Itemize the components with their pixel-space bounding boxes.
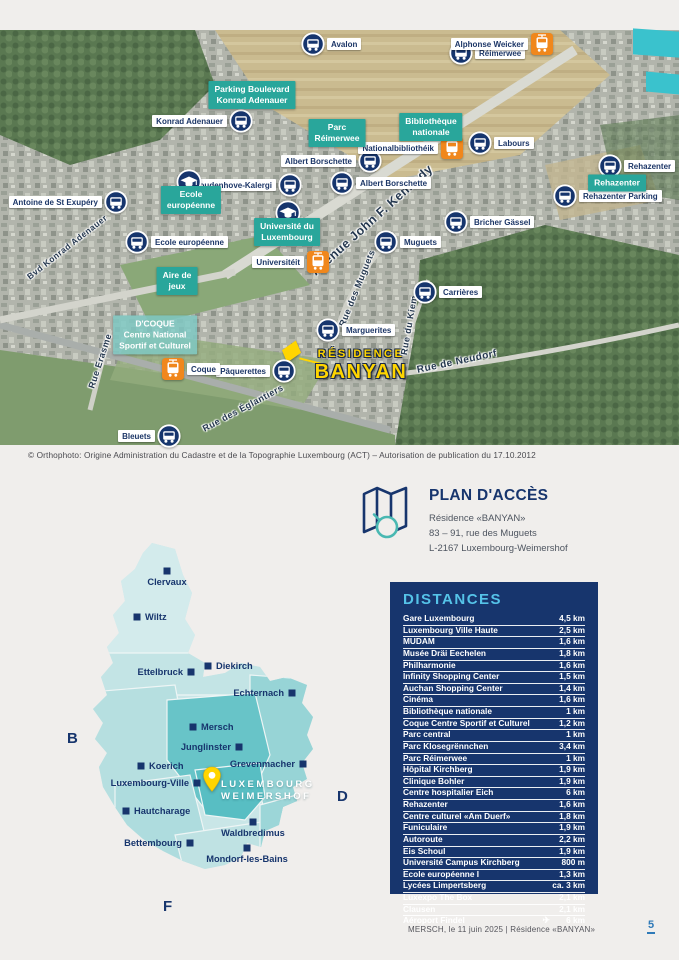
bus-stop-label: Carrières bbox=[439, 286, 482, 298]
distance-value: 800 m bbox=[561, 858, 585, 867]
address-line-2: 83 – 91, rue des Muguets bbox=[429, 526, 568, 541]
poi-box-line: Konrad Adenauer bbox=[214, 95, 289, 106]
poi-box-line: Rehazenter bbox=[594, 177, 640, 188]
distance-value-group: 1,9 km bbox=[559, 847, 585, 856]
distance-place: Parc Réimerwee bbox=[403, 754, 467, 763]
city-label: Hautcharage bbox=[134, 806, 190, 816]
distance-place: Clausen bbox=[403, 905, 435, 914]
distance-place: Philharmonie bbox=[403, 661, 456, 670]
distance-value: 1,2 km bbox=[559, 719, 585, 728]
bus-stop-icon bbox=[278, 173, 302, 197]
distance-value: 1,3 km bbox=[559, 870, 585, 879]
tram-stop-label: Coque bbox=[187, 363, 220, 375]
distances-panel: DISTANCES Gare Luxembourg4,5 kmLuxembour… bbox=[390, 582, 598, 894]
street-label: Rue de Neudorf bbox=[416, 348, 498, 376]
city-label: Luxembourg-Ville bbox=[111, 778, 189, 788]
bus-stop-label: Avalon bbox=[327, 38, 361, 50]
table-row: Gare Luxembourg4,5 km bbox=[403, 614, 585, 626]
city-marker bbox=[289, 690, 296, 697]
distance-value-group: 1,8 km bbox=[559, 812, 585, 821]
distance-value: 1 km bbox=[566, 754, 585, 763]
distance-value: 1,9 km bbox=[559, 777, 585, 786]
distance-value-group: 1 km bbox=[566, 707, 585, 716]
bus-stop-label: Labours bbox=[494, 137, 534, 149]
distance-place: Rehazenter bbox=[403, 800, 448, 809]
distance-value: 1,6 km bbox=[559, 695, 585, 704]
distance-place: Ecole européenne I bbox=[403, 870, 479, 879]
distance-value: 1,9 km bbox=[559, 823, 585, 832]
country-letter: F bbox=[163, 898, 172, 915]
city-marker bbox=[236, 744, 243, 751]
city-marker bbox=[244, 845, 251, 852]
bus-stop-icon bbox=[301, 32, 325, 56]
distance-value: 2,1 km bbox=[559, 905, 585, 914]
distance-value-group: 1,9 km bbox=[559, 823, 585, 832]
city-label: Echternach bbox=[233, 688, 284, 698]
distance-place: Gare Luxembourg bbox=[403, 614, 474, 623]
distance-place: Hôpital Kirchberg bbox=[403, 765, 473, 774]
tram-stop-icon bbox=[307, 249, 329, 273]
table-row: Rehazenter1,6 km bbox=[403, 800, 585, 812]
distance-place: Auchan Shopping Center bbox=[403, 684, 503, 693]
city-label: Mersch bbox=[201, 722, 234, 732]
bus-stop-icon bbox=[229, 109, 253, 133]
distance-value-group: 1,2 km bbox=[559, 719, 585, 728]
distance-place: Centre culturel «Am Duerf» bbox=[403, 812, 510, 821]
distance-value: 2,1 km bbox=[559, 893, 585, 902]
distance-place: Parc Klosegrënnchen bbox=[403, 742, 488, 751]
poi-box: Bibliothèquenationale bbox=[399, 113, 462, 141]
country-map-overlays: LUXEMBOURG WEIMERSHOF ClervauxWiltzEttel… bbox=[55, 535, 385, 945]
city-label: Koerich bbox=[149, 761, 184, 771]
distance-value-group: 1,6 km bbox=[559, 661, 585, 670]
city-marker bbox=[187, 840, 194, 847]
country-letter: D bbox=[337, 788, 348, 805]
distance-value: 1,8 km bbox=[559, 649, 585, 658]
distance-value-group: 2,1 km bbox=[559, 893, 585, 902]
distance-value: 1,8 km bbox=[559, 812, 585, 821]
distance-value: 1,5 km bbox=[559, 672, 585, 681]
distance-value-group: 1,9 km bbox=[559, 765, 585, 774]
tram-stop-label: Nationalbibliothéik bbox=[358, 142, 438, 154]
table-row: Parc Klosegrënnchen3,4 km bbox=[403, 742, 585, 754]
city-marker bbox=[123, 808, 130, 815]
distance-value: 1,4 km bbox=[559, 684, 585, 693]
bus-stop-label: Konrad Adenauer bbox=[152, 115, 227, 127]
address-line-3: L-2167 Luxembourg-Weimershof bbox=[429, 541, 568, 556]
distance-value-group: 6 km bbox=[566, 788, 585, 797]
bus-stop-label: Rehazenter Parking bbox=[579, 190, 662, 202]
table-row: Luxexpo The Box2,1 km bbox=[403, 893, 585, 905]
bus-stop-icon bbox=[316, 318, 340, 342]
bus-stop-icon bbox=[104, 190, 128, 214]
distance-value: 1,6 km bbox=[559, 800, 585, 809]
city-marker bbox=[300, 761, 307, 768]
address-line-1: Résidence «BANYAN» bbox=[429, 511, 568, 526]
distance-place: Bibliothèque nationale bbox=[403, 707, 492, 716]
distance-place: Cinéma bbox=[403, 695, 433, 704]
bus-stop-icon bbox=[444, 210, 468, 234]
distances-title: DISTANCES bbox=[403, 591, 585, 608]
highlighted-parcel bbox=[633, 28, 679, 57]
city-marker bbox=[138, 763, 145, 770]
highlight-line1: LUXEMBOURG bbox=[221, 779, 315, 791]
bus-stop-label: Bricher Gässel bbox=[470, 216, 534, 228]
street-label: Bvd Konrad Adenauer bbox=[25, 213, 109, 282]
tram-stop-icon bbox=[162, 356, 184, 380]
poi-box: Université duLuxembourg bbox=[254, 218, 320, 246]
city-label: Clervaux bbox=[147, 577, 186, 587]
city-marker bbox=[190, 724, 197, 731]
distances-table: Gare Luxembourg4,5 kmLuxembourg Ville Ha… bbox=[403, 614, 585, 880]
tram-stop-label: Alphonse Weicker bbox=[451, 38, 528, 50]
city-marker bbox=[134, 614, 141, 621]
poi-box: Parking BoulevardKonrad Adenauer bbox=[208, 81, 295, 109]
poi-box-line: Aire de bbox=[163, 270, 192, 281]
tram-stop-icon bbox=[531, 31, 553, 55]
brochure-page: RÉSIDENCE BANYAN Bvd Konrad AdenauerAven… bbox=[0, 0, 679, 960]
distance-place: Infinity Shopping Center bbox=[403, 672, 499, 681]
city-label: Waldbredimus bbox=[221, 828, 285, 838]
poi-box: Aire dejeux bbox=[157, 267, 198, 295]
aerial-map: RÉSIDENCE BANYAN Bvd Konrad AdenauerAven… bbox=[0, 30, 679, 445]
poi-box: ParcRéimerwee bbox=[309, 119, 366, 147]
table-row: Infinity Shopping Center1,5 km bbox=[403, 672, 585, 684]
residence-banyan-label: RÉSIDENCE BANYAN bbox=[315, 348, 408, 384]
bus-stop-icon bbox=[272, 359, 296, 383]
bus-stop-icon bbox=[553, 184, 577, 208]
luxembourg-weimershof-label: LUXEMBOURG WEIMERSHOF bbox=[221, 779, 315, 803]
highlight-line2: WEIMERSHOF bbox=[221, 791, 315, 803]
bus-stop-icon bbox=[374, 230, 398, 254]
city-label: Grevenmacher bbox=[230, 759, 295, 769]
city-label: Mondorf-les-Bains bbox=[206, 854, 288, 864]
poi-box: Rehazenter bbox=[588, 174, 646, 191]
distance-place: Luxembourg Ville Haute bbox=[403, 626, 498, 635]
bus-stop-label: Rehazenter bbox=[624, 160, 675, 172]
footer-text: MERSCH, le 11 juin 2025 | Résidence «BAN… bbox=[408, 925, 595, 934]
bus-stop-label: Albert Borschette bbox=[281, 155, 356, 167]
distance-value: 1,6 km bbox=[559, 661, 585, 670]
bus-stop-label: Ecole européenne bbox=[151, 236, 228, 248]
residence-label-line2: BANYAN bbox=[315, 361, 408, 384]
distance-value-group: ca. 3 km bbox=[552, 881, 585, 890]
distance-value-group: 2,1 km bbox=[559, 905, 585, 914]
luxembourg-country-map: LUXEMBOURG WEIMERSHOF ClervauxWiltzEttel… bbox=[55, 535, 385, 945]
city-label: Ettelbruck bbox=[138, 667, 183, 677]
distance-value-group: 1,4 km bbox=[559, 684, 585, 693]
distance-place: Luxexpo The Box bbox=[403, 893, 472, 902]
poi-box: D'COQUECentre NationalSportif et Culture… bbox=[113, 315, 197, 354]
bus-stop-label: Antoine de St Exupéry bbox=[9, 196, 102, 208]
city-marker bbox=[194, 780, 201, 787]
distance-value: 6 km bbox=[566, 916, 585, 925]
table-row: Autoroute2,2 km bbox=[403, 835, 585, 847]
distance-place: Coque Centre Sportif et Culturel bbox=[403, 719, 530, 728]
orthophoto-credit: © Orthophoto: Origine Administration du … bbox=[28, 450, 536, 460]
city-label: Bettembourg bbox=[124, 838, 182, 848]
bus-stop-label: Albert Borschette bbox=[356, 177, 431, 189]
distance-value: 2,2 km bbox=[559, 835, 585, 844]
residence-address: Résidence «BANYAN» 83 – 91, rue des Mugu… bbox=[429, 511, 568, 556]
distance-value-group: 1,6 km bbox=[559, 695, 585, 704]
city-marker bbox=[164, 568, 171, 575]
distance-value: 1 km bbox=[566, 707, 585, 716]
table-row: Hôpital Kirchberg1,9 km bbox=[403, 765, 585, 777]
distance-value-group: 800 m bbox=[561, 858, 585, 867]
poi-box-line: européenne bbox=[167, 200, 215, 211]
bus-stop-icon bbox=[413, 280, 437, 304]
location-pin-icon bbox=[202, 766, 222, 793]
distance-value: 1 km bbox=[566, 730, 585, 739]
poi-box-line: Ecole bbox=[167, 189, 215, 200]
city-label: Wiltz bbox=[145, 612, 167, 622]
table-row: Université Campus Kirchberg800 m bbox=[403, 858, 585, 870]
distance-place: Funiculaire bbox=[403, 823, 447, 832]
city-marker bbox=[205, 663, 212, 670]
bus-stop-icon bbox=[330, 171, 354, 195]
distance-value-group: 1,9 km bbox=[559, 777, 585, 786]
poi-box-line: Réimerwee bbox=[315, 133, 360, 144]
bus-stop-icon bbox=[468, 131, 492, 155]
city-label: Junglinster bbox=[181, 742, 231, 752]
poi-box-line: Bibliothèque bbox=[405, 116, 456, 127]
distance-place: Parc central bbox=[403, 730, 451, 739]
poi-box-line: D'COQUE bbox=[119, 318, 191, 329]
distance-place: Clinique Bohler bbox=[403, 777, 464, 786]
poi-box-line: jeux bbox=[163, 281, 192, 292]
city-marker bbox=[250, 819, 257, 826]
access-plan-title: PLAN D'ACCÈS bbox=[429, 487, 568, 505]
distance-value-group: 1,5 km bbox=[559, 672, 585, 681]
distance-value: 1,9 km bbox=[559, 765, 585, 774]
distance-value-group: 1,6 km bbox=[559, 800, 585, 809]
distance-value-group: 1,8 km bbox=[559, 649, 585, 658]
street-label: Rue des Églantiers bbox=[201, 382, 285, 433]
poi-box-line: Université du bbox=[260, 221, 314, 232]
distance-value: 1,9 km bbox=[559, 847, 585, 856]
poi-box: Ecoleeuropéenne bbox=[161, 186, 221, 214]
highlighted-parcel bbox=[646, 72, 679, 95]
distance-value-group: 2,5 km bbox=[559, 626, 585, 635]
distance-place: Eis Schoul bbox=[403, 847, 445, 856]
distance-value-group: 1 km bbox=[566, 754, 585, 763]
poi-box-line: Parc bbox=[315, 122, 360, 133]
aerial-map-overlays: RÉSIDENCE BANYAN Bvd Konrad AdenauerAven… bbox=[0, 30, 679, 445]
poi-box-line: Centre National bbox=[119, 329, 191, 340]
bus-stop-label: Pâquerettes bbox=[216, 365, 270, 377]
country-letter: B bbox=[67, 730, 78, 747]
poi-box-line: Luxembourg bbox=[260, 232, 314, 243]
city-marker bbox=[188, 669, 195, 676]
bus-stop-label: Marguerites bbox=[342, 324, 395, 336]
distance-value-group: 2,2 km bbox=[559, 835, 585, 844]
street-label: Rue Erasme bbox=[86, 332, 113, 389]
distance-place: Université Campus Kirchberg bbox=[403, 858, 520, 867]
distance-value-group: 1,3 km bbox=[559, 870, 585, 879]
distance-place: Lycées Limpertsberg bbox=[403, 881, 486, 890]
table-row: Bibliothèque nationale1 km bbox=[403, 707, 585, 719]
bus-stop-label: Muguets bbox=[400, 236, 441, 248]
distance-place: Centre hospitalier Eich bbox=[403, 788, 493, 797]
distance-value-group: 4,5 km bbox=[559, 614, 585, 623]
distance-place: Autoroute bbox=[403, 835, 443, 844]
distance-value: 6 km bbox=[566, 788, 585, 797]
distance-value: 3,4 km bbox=[559, 742, 585, 751]
city-label: Diekirch bbox=[216, 661, 253, 671]
page-number: 5 bbox=[647, 919, 655, 934]
distance-place: MUDAM bbox=[403, 637, 435, 646]
bus-stop-icon bbox=[125, 230, 149, 254]
distance-value-group: 3,4 km bbox=[559, 742, 585, 751]
distance-value-group: 1 km bbox=[566, 730, 585, 739]
distance-place: Musée Dräi Eechelen bbox=[403, 649, 486, 658]
bus-stop-icon bbox=[157, 424, 181, 448]
distance-value: 4,5 km bbox=[559, 614, 585, 623]
residence-label-line1: RÉSIDENCE bbox=[315, 348, 408, 360]
distance-value: ca. 3 km bbox=[552, 881, 585, 890]
distance-value: 1,6 km bbox=[559, 637, 585, 646]
distance-value: 2,5 km bbox=[559, 626, 585, 635]
distance-value-group: 1,6 km bbox=[559, 637, 585, 646]
distance-place: Aéroport Findel bbox=[403, 916, 465, 925]
bus-stop-label: Bleuets bbox=[118, 430, 155, 442]
table-row: Musée Dräi Eechelen1,8 km bbox=[403, 649, 585, 661]
poi-box-line: nationale bbox=[405, 127, 456, 138]
access-plan-text: PLAN D'ACCÈS Résidence «BANYAN» 83 – 91,… bbox=[429, 481, 568, 556]
poi-box-line: Parking Boulevard bbox=[214, 84, 289, 95]
poi-box-line: Sportif et Culturel bbox=[119, 341, 191, 352]
tram-stop-label: Universitéit bbox=[252, 256, 304, 268]
access-plan-block: PLAN D'ACCÈS Résidence «BANYAN» 83 – 91,… bbox=[356, 481, 568, 556]
street-label: Rue des Muguets bbox=[337, 248, 377, 328]
